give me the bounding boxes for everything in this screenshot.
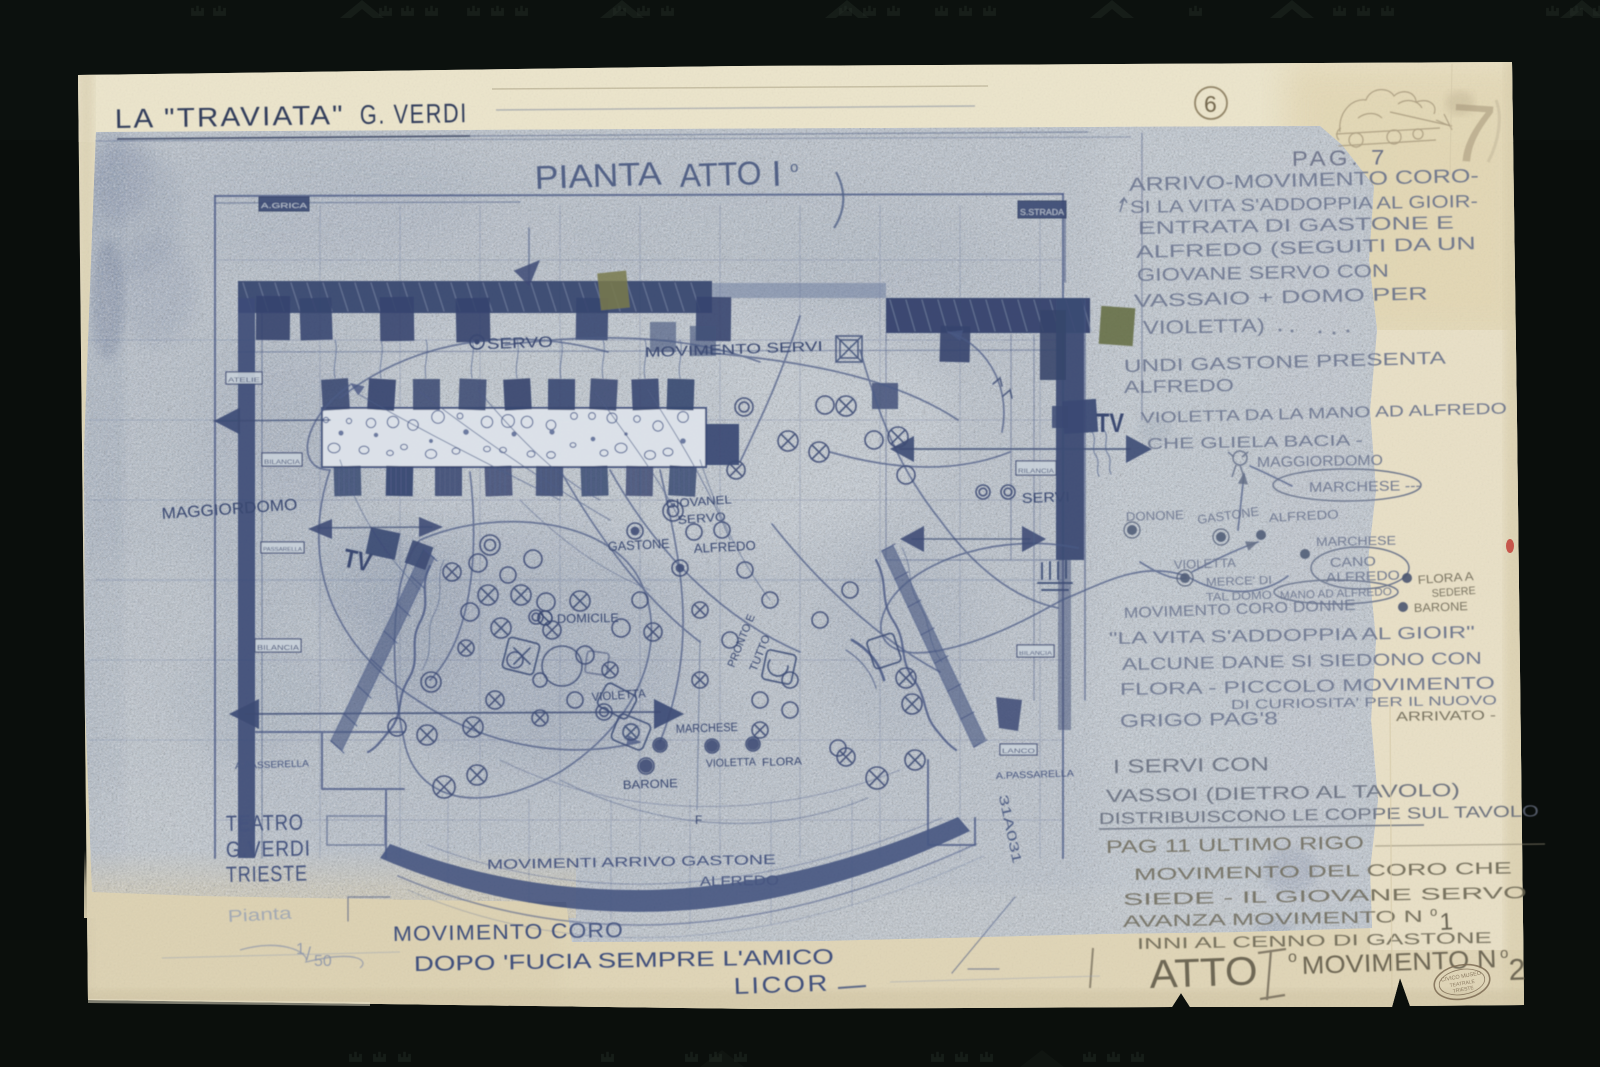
svg-text:50: 50 xyxy=(314,953,332,970)
svg-text:LA "TRAVIATA": LA "TRAVIATA" xyxy=(115,100,345,134)
svg-text:BARONE: BARONE xyxy=(1414,599,1468,615)
svg-text:Pianta: Pianta xyxy=(227,904,293,926)
svg-text:1: 1 xyxy=(1439,908,1454,936)
svg-text:1: 1 xyxy=(296,941,305,958)
svg-text:G. VERDI: G. VERDI xyxy=(360,98,469,130)
svg-text:2: 2 xyxy=(1508,953,1526,987)
svg-text:ARRIVATO -: ARRIVATO - xyxy=(1396,707,1496,724)
svg-text:ATTO: ATTO xyxy=(1149,949,1258,997)
svg-text:LICOR: LICOR xyxy=(733,970,830,999)
svg-text:6: 6 xyxy=(1204,91,1217,117)
svg-text:o: o xyxy=(1430,904,1437,919)
svg-text:o: o xyxy=(1288,949,1297,966)
